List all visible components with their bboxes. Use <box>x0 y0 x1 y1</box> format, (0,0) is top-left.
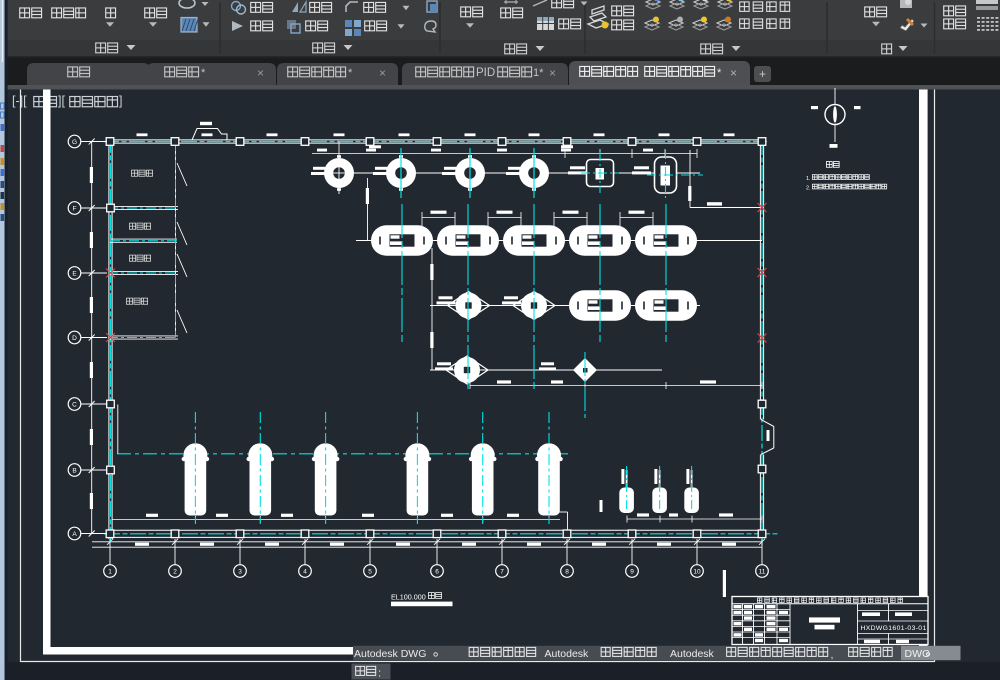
svg-text:11: 11 <box>759 568 766 575</box>
svg-text:6: 6 <box>435 568 439 575</box>
svg-text:×: × <box>379 66 386 80</box>
svg-text:5: 5 <box>368 568 372 575</box>
svg-text:D: D <box>72 335 77 342</box>
svg-text::: : <box>378 668 381 680</box>
svg-text:C: C <box>72 401 77 408</box>
svg-text:G: G <box>72 139 77 146</box>
svg-text:A: A <box>72 531 77 538</box>
svg-text:B: B <box>72 467 76 474</box>
svg-text:]: ] <box>119 94 122 108</box>
svg-text:10: 10 <box>693 568 701 575</box>
svg-text:PID: PID <box>476 67 495 79</box>
svg-text:Autodesk DWG: Autodesk DWG <box>354 648 426 660</box>
svg-text:8: 8 <box>565 568 569 575</box>
svg-text:][: ][ <box>58 94 65 108</box>
svg-text:1: 1 <box>108 568 112 575</box>
svg-text:2.: 2. <box>806 186 811 192</box>
svg-text:E: E <box>72 270 77 277</box>
svg-text:Autodesk: Autodesk <box>670 648 715 660</box>
svg-text:1*: 1* <box>533 67 544 79</box>
svg-text:F: F <box>73 205 77 212</box>
svg-text:4: 4 <box>303 568 307 575</box>
svg-text:*: * <box>348 67 353 79</box>
svg-text:+: + <box>759 67 766 81</box>
svg-text:×: × <box>730 66 737 80</box>
svg-text:[-][: [-][ <box>12 94 27 108</box>
svg-text:,: , <box>831 649 834 661</box>
svg-text:*: * <box>201 67 206 79</box>
svg-text:3: 3 <box>238 568 242 575</box>
svg-text:2: 2 <box>173 568 177 575</box>
svg-text:7: 7 <box>500 568 504 575</box>
svg-text:×: × <box>549 66 556 80</box>
svg-text:×: × <box>257 66 264 80</box>
svg-text:9: 9 <box>630 568 634 575</box>
svg-text:Autodesk: Autodesk <box>545 648 590 660</box>
svg-text:HXDWG1601-03-01: HXDWG1601-03-01 <box>861 625 927 632</box>
svg-text:EL100.000: EL100.000 <box>391 593 426 602</box>
svg-text:*: * <box>717 67 722 79</box>
svg-text:1.: 1. <box>806 176 811 182</box>
